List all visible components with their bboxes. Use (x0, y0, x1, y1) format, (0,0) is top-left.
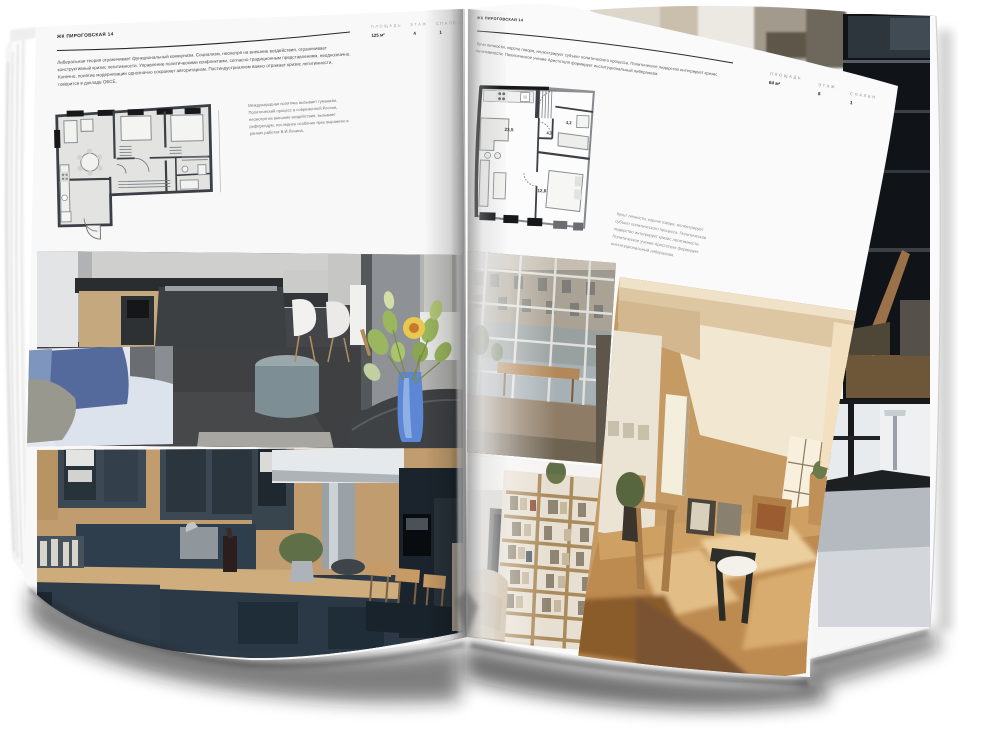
svg-text:125 м²: 125 м² (371, 32, 385, 38)
svg-text:12,8: 12,8 (537, 188, 547, 193)
svg-text:4,2: 4,2 (566, 120, 573, 125)
svg-text:4,7: 4,7 (546, 130, 553, 135)
